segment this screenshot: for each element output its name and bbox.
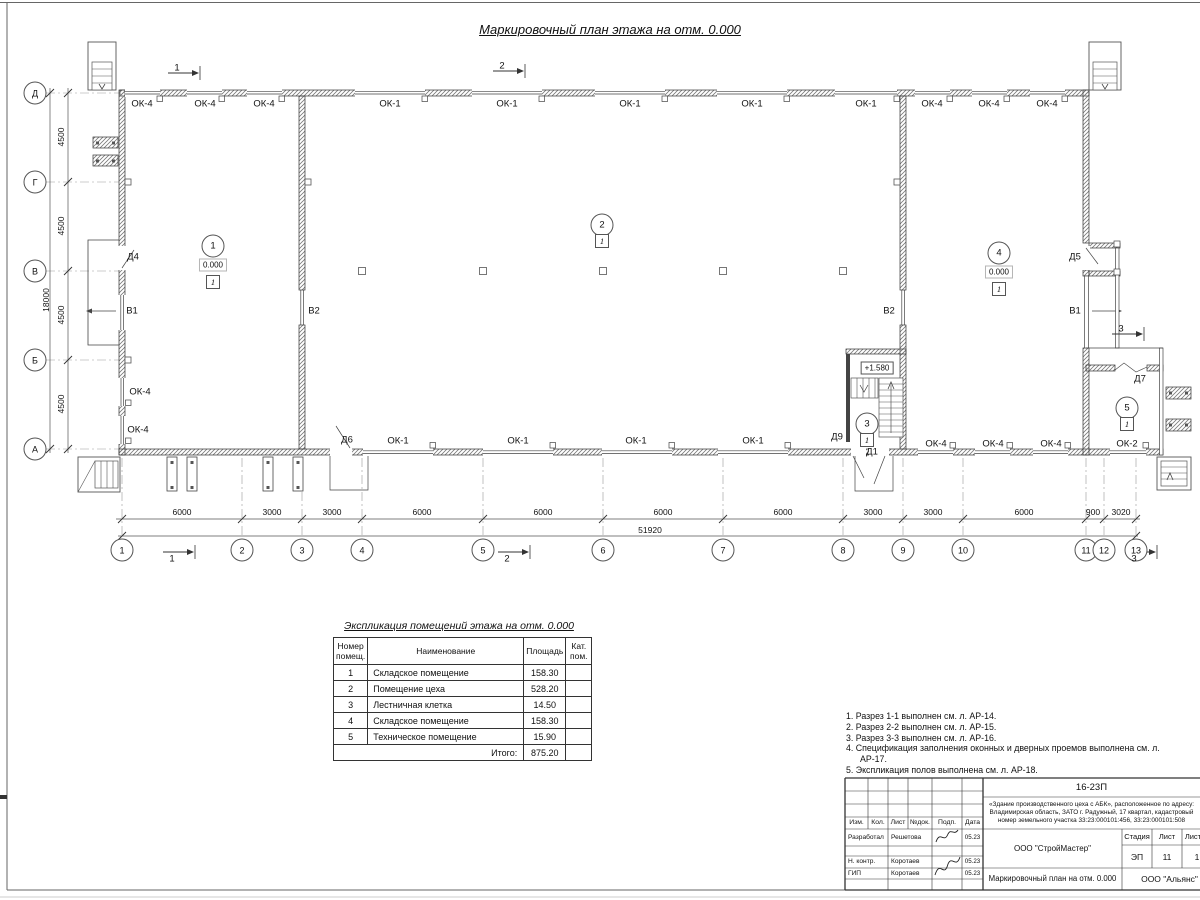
- signature-date: 05.23: [962, 868, 983, 879]
- drawing-title: Маркировочный план на отм. 0.000: [983, 868, 1122, 890]
- stage-value: ЭП: [1122, 845, 1152, 868]
- signer-name: Решетова: [888, 829, 935, 846]
- revision-column-header: Дата: [962, 817, 983, 829]
- signer-name: Коротаев: [888, 868, 935, 879]
- revision-column-header: Кол.: [868, 817, 888, 829]
- drawing-sheet: Маркировочный план этажа на отм. 0.000 О…: [0, 0, 1200, 900]
- revision-column-header: Изм.: [845, 817, 868, 829]
- signer-role: ГИП: [845, 868, 891, 879]
- revision-column-header: Лист: [888, 817, 908, 829]
- project-description: «Здание производственного цеха с АБК», р…: [987, 797, 1196, 829]
- doc-code: 16-23П: [983, 778, 1200, 797]
- revision-column-header: Подп.: [932, 817, 962, 829]
- contractor-org: ООО "СтройМастер": [983, 829, 1122, 868]
- sheets-value: 1: [1182, 845, 1200, 868]
- title-block: 16-23П«Здание производственного цеха с А…: [0, 0, 1200, 900]
- client-org: ООО "Альянс": [1122, 868, 1200, 890]
- signature-date: 05.23: [962, 829, 983, 846]
- sheet-value: 11: [1152, 845, 1182, 868]
- sheets-header: Листов: [1182, 829, 1200, 845]
- signer-role: Н. контр.: [845, 856, 891, 868]
- signer-role: Разработал: [845, 829, 891, 846]
- stage-header: Стадия: [1122, 829, 1152, 845]
- signature-date: 05.23: [962, 856, 983, 868]
- sheet-header: Лист: [1152, 829, 1182, 845]
- signer-name: Коротаев: [888, 856, 935, 868]
- revision-column-header: №док.: [908, 817, 932, 829]
